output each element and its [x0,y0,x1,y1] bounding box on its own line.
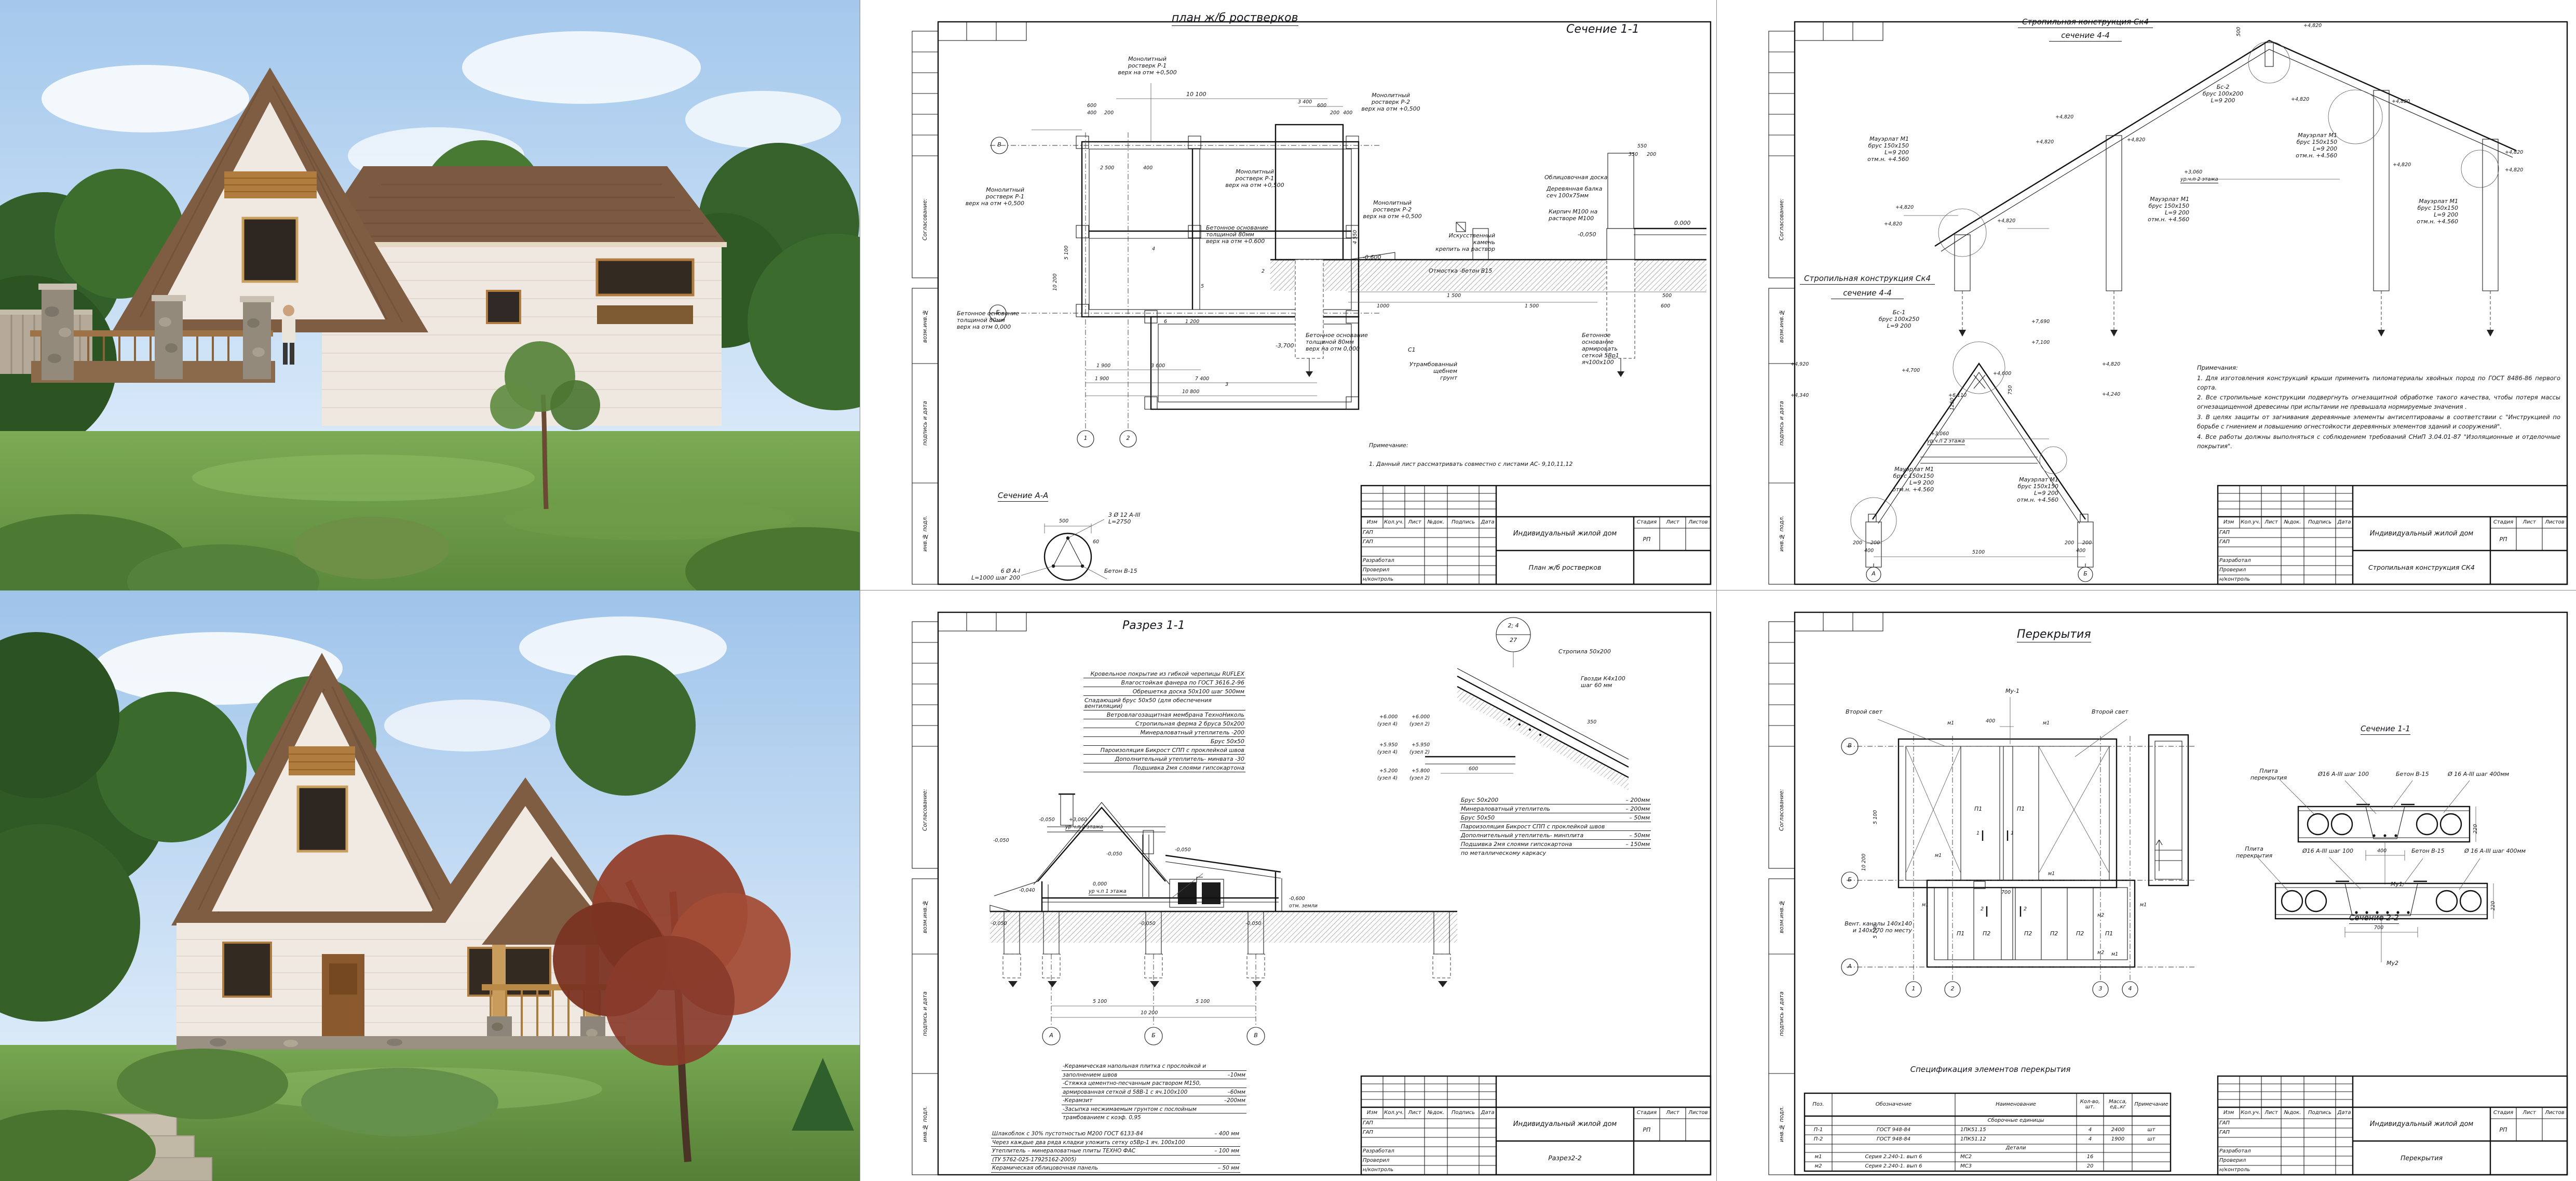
layer-value: – 100 мм [1214,1148,1239,1154]
titleblock-stage-value: РП [2490,1119,2516,1141]
titleblock-listov-label: Листов [1686,517,1711,528]
elevation-label: +6.000 [1412,714,1430,720]
dim-label: 3 400 [1298,99,1312,105]
spec-col: Масса, ед.,кг [2104,1093,2132,1116]
side-strip-label: Согласование: [1769,751,1795,868]
dim-label: 750 [2008,385,2013,395]
elevation-label: -0,050 [1106,851,1122,857]
titleblock-col: №док. [2281,1107,2304,1119]
elevation-note: ур.ч.п 2 этажа [2180,177,2218,183]
elevation-label: +4,820 [2392,99,2410,104]
layer-value: – 50мм [1629,833,1650,838]
spec-cell: 1ПК51.12 [1955,1135,2082,1144]
elevation-label: +4,820 [2505,167,2523,173]
render-bottom-photo [0,591,860,1181]
dim-label: 10 800 [1182,389,1199,395]
titleblock-col: Кол.уч. [2240,517,2261,528]
slab-label: П1 [2105,931,2113,937]
elevation-label: +3,060 [2184,169,2202,175]
section-2-2-slab [2257,856,2493,962]
layer-value: – 400 мм [1214,1131,1239,1137]
dim-label: 400 [1143,165,1153,171]
list-line: Брус 50х50 [1083,737,1245,746]
layer-name: (ТУ 5762-025-17925162-2005) [992,1157,1077,1163]
axis-label: 2 [1124,435,1132,442]
dim-label: 200 [2065,540,2074,546]
titleblock-listov-label: Листов [1686,1107,1711,1119]
section-mark: 6 [1164,319,1167,325]
dim-label: 220 [2490,901,2496,910]
spec-cell: 4 [2077,1135,2104,1144]
node-detail-drawing [1425,618,1629,790]
dim-label: 4 550 [1352,230,1358,244]
spec-group: Сборочные единицы [1955,1116,2077,1125]
titleblock-col: №док. [1425,517,1447,528]
layer-name: Минераловатный утеплитель [1461,806,1550,812]
gost-frame [912,612,1711,1175]
elevation-label: -0,600 [1363,254,1381,261]
list-line: Стропильная ферма 2 бруса 50х200 [1083,719,1245,728]
elevation-label: +4,820 [1884,221,1902,227]
annotation: Ø 16 А-III шаг 400мм [2448,771,2509,778]
list-line: заполнением швов–10мм [1062,1071,1246,1080]
list-line: -Стяжка цементно-песчанным раствором М15… [1062,1079,1246,1088]
annotation: Мауэрлат М1 брус 150х150 L=9 200 отм.н. … [1852,136,1909,163]
annotation: м1 [1922,902,1929,908]
elevation-label: +4,820 [2055,114,2073,120]
annotation: Монолитный ростверк Р-2 верх на отм +0,5… [1361,200,1423,220]
dim-label: 500 [1059,518,1068,524]
titleblock-col: Подпись [2304,517,2336,528]
axis-label: 3 [2096,986,2105,992]
layer-value: – 150мм [1625,841,1650,847]
notes-heading: Примечания: [2197,364,2560,373]
titleblock-col: Кол.уч. [1383,1107,1405,1119]
sheet-slabs: Согласование: возм.инв.№ подпись и дата … [1717,591,2576,1181]
layer-value: –60мм [1228,1090,1245,1095]
slab-label: П1 [2017,806,2025,813]
annotation: Второй свет [2092,709,2128,716]
dim-label: 60 [1093,539,1099,545]
render-top-photo [0,0,860,591]
elevation-label: 0.000 [1674,220,1691,227]
annotation: С1 [1408,347,1416,354]
titleblock-docname: План ж/б ростверков [1496,551,1634,584]
dim-label: 3 600 [1151,363,1165,369]
titleblock-role: н/контроль [1363,1165,1423,1175]
side-strip-label: инв.№ подл. [912,483,938,584]
elevation-label: +4,240 [2102,392,2120,397]
elevation-label: -0,050 [1578,232,1596,238]
section-subtitle: сечение 4-4 [1831,289,1904,299]
annotation: Искусственный камень крепить на раствор [1428,233,1495,253]
elevation-note: (узел 4) [1377,775,1398,781]
layer-name: Дополнительный утеплитель- минплита [1461,833,1583,838]
note-line: 1. Для изготовления конструкций крыши пр… [2197,374,2560,393]
dim-label: 700 [2001,890,2011,895]
annotation: Мауэрлат М1 брус 150х150 L=9 200 отм.н. … [1877,466,1934,493]
titleblock-col: Дата [1479,517,1496,528]
annotation: Утрамбованный щебнем грунт [1400,361,1457,382]
annotation: Мауэрлат М1 брус 150х150 L=9 200 отм.н. … [2132,196,2189,223]
elevation-label: -0,050 [1175,847,1191,853]
elevation-label: +4,820 [2127,137,2145,143]
layer-name: Шлакоблок с 30% пустотностью М200 ГОСТ 6… [992,1131,1143,1137]
slab-label: П2 [2050,931,2058,937]
elevation-note: (узел 2) [1409,721,1430,727]
layer-name: по металлическому каркасу [1461,850,1546,856]
titleblock-project: Индивидуальный жилой дом [2353,1107,2490,1141]
elevation-label: +3,060 [1069,817,1087,823]
dim-label: 5 100 [1873,810,1878,824]
axis-label: 2 [1948,986,1957,992]
list-line: Минераловатный утеплитель– 200мм [1460,804,1651,813]
axis-label: В [1846,743,1854,749]
elevation-note: ур ч.п 2 этажа [1065,824,1103,831]
dim-label: 1 200 [1185,319,1199,325]
dim-label: 1 900 [1095,376,1109,382]
titleblock-role: н/контроль [1363,575,1423,584]
section-mark: 1 [1976,830,1980,836]
dim-label: 600 [1317,103,1326,109]
elevation-label: -0,050 [1245,921,1262,927]
annotation: Плита перекрытия [2231,846,2277,860]
side-strip-label: Согласование: [912,751,938,868]
titleblock-role: Разработал [1363,556,1423,566]
annotation: Монолитный ростверк Р-1 верх на отм +0,5… [1224,169,1286,189]
list-line: Ветровлагозащитная мембрана ТехноНиколь [1083,710,1245,719]
annotation: Плита перекрытия [2245,768,2292,782]
dim-label: 5 100 [1873,924,1878,938]
side-strip-label: подпись и дата [912,954,938,1073]
dim-label: 10 200 [1052,274,1058,291]
axis-label: В [995,142,1004,149]
layer-name: Утеплитель – минераловатные плиты ТЕХНО … [992,1148,1135,1154]
slab-label: П1 [1957,931,1964,937]
dim-label: 5 100 [1093,999,1107,1004]
titleblock-col: №док. [2281,517,2304,528]
titleblock-col: Изм [2218,1107,2240,1119]
layer-value: – 200мм [1625,797,1650,803]
list-line: Кровельное покрытие из гибкой черепицы R… [1083,669,1245,678]
layer-name: Брус 50х200 [1461,797,1498,803]
elevation-label: +4,820 [2036,139,2054,145]
slab-label: П2 [2024,931,2032,937]
dim-label: 200 [2082,540,2092,546]
layer-name: Через каждые два ряда кладки уложить сет… [992,1140,1185,1146]
axis-label: Б [1846,877,1854,883]
dim-label: 350 [1587,719,1596,725]
annotation: м2 [2097,912,2104,918]
slab-label: П1 [1974,806,1982,813]
elevation-label: +5.950 [1379,742,1398,748]
titleblock-col: Изм [2218,517,2240,528]
spec-title: Спецификация элементов перекрытия [1910,1065,2071,1075]
titleblock-col: Кол.уч. [2240,1107,2261,1119]
elevation-note: отм. земли [1289,903,1318,909]
dim-label: 400 [2377,848,2387,854]
section-title: Сечение 1-1 [2361,724,2410,735]
elevation-label: -0,050 [1039,817,1055,823]
dim-label: 200 [1330,110,1339,116]
annotation: Бетон В-15 [2411,848,2445,855]
annotation: Гвозди К4х100 шаг 60 мм [1581,676,1625,689]
section-mark: 2 [1981,906,1984,912]
list-line: Влагостойкая фанера по ГОСТ 3616.2-96 [1083,678,1245,687]
elevation-label: +4,340 [1791,393,1809,398]
annotation: Ø 16 А-III шаг 400мм [2464,848,2526,855]
list-line: Пароизоляция Бикрост СПП с проклейкой шв… [1460,822,1651,831]
elevation-label: +7,690 [2031,319,2050,325]
dim-label: 400 [1087,110,1096,116]
titleblock-col: Подпись [1447,1107,1479,1119]
titleblock-role: Проверил [2219,566,2280,575]
list-line: Обрешетка доска 50х100 шаг 500мм [1083,687,1245,696]
spec-cell: МС3 [1955,1162,2082,1171]
layer-name: -Засыпка несжимаемым грунтом с послойным [1063,1107,1197,1112]
titleblock-stage-label: Стадия [2490,517,2516,528]
annotation: м1 [2043,720,2050,726]
spec-cell: 20 [2077,1162,2104,1171]
spec-cell: 1900 [2104,1135,2132,1144]
elevation-label: +4,820 [1997,218,2015,224]
sheet-razrez: Согласование: возм.инв.№ подпись и дата … [860,591,1717,1181]
annotation: 3 Ø 12 А-III L=2750 [1108,512,1140,526]
spec-cell: 4 [2077,1125,2104,1135]
elevation-note: (узел 2) [1409,775,1430,781]
titleblock-project: Индивидуальный жилой дом [1496,517,1634,551]
titleblock-stage-value: РП [2490,528,2516,551]
titleblock-project: Индивидуальный жилой дом [1496,1107,1634,1141]
dim-label: 1000 [1377,303,1389,309]
titleblock-col: №док. [1425,1107,1447,1119]
list-line: трамбованием с коэф. 0,95 [1062,1113,1246,1122]
annotation: Бс-1 брус 100х250 L=9 200 [1870,310,1928,330]
annotation: м1 [1935,853,1942,858]
dim-label: 200 [1853,540,1862,546]
annotation: м1 [2111,951,2118,957]
annotation: Деревянная балка сеч 100х75мм [1547,186,1602,199]
elevation-label: +4,600 [1993,371,2011,377]
titleblock-col: Лист [1405,517,1425,528]
titleblock-role: ГАП [2219,1119,2280,1128]
section-title: Сечение 2-2 [2349,914,2399,924]
sheet-truss: Согласование: возм.инв.№ подпись и дата … [1717,0,2576,591]
dim-label: 500 [1662,293,1672,299]
titleblock-role: ГАП [2219,1128,2280,1137]
side-strip-label: подпись и дата [1769,364,1795,483]
layer-name: -Керамическая напольная плитка с прослой… [1063,1064,1206,1069]
dim-label: 7 400 [1195,376,1209,382]
list-line: армированная сеткой d 58В-1 с яч.100х100… [1062,1088,1246,1097]
spec-cell: 1ПК51.15 [1955,1125,2082,1135]
note-line: 2. Все стропильные конструкции подвергну… [2197,393,2560,412]
titleblock-role: ГАП [1363,1128,1423,1137]
layer-name: заполнением швов [1063,1072,1117,1078]
elevation-label: +4,820 [2393,162,2411,168]
axis-label: А [1846,963,1854,970]
section-mark: 5 [1201,284,1204,289]
node-ref-bottom: 27 [1502,637,1525,644]
titleblock-listov-label: Листов [2542,1107,2567,1119]
spec-col: Наименование [1955,1093,2077,1116]
titleblock-list-label: Лист [2516,1107,2542,1119]
layer-name: Брус 50х50 [1461,815,1495,821]
elevation-label: +6.000 [1379,714,1398,720]
titleblock-project: Индивидуальный жилой дом [2353,517,2490,551]
titleblock-col: Дата [2336,517,2353,528]
annotation: Бетон В-15 [2396,771,2429,778]
titleblock-role: Разработал [2219,556,2280,566]
titleblock-role: Проверил [1363,1156,1423,1165]
slab-plan-drawing [1841,697,2194,997]
elevation-label: -0,050 [1140,921,1156,927]
elevation-label: +4,820 [1895,205,1914,210]
titleblock-role: Проверил [2219,1156,2280,1165]
elevation-label: +5.800 [1412,768,1430,774]
list-line: Брус 50х50– 50мм [1460,813,1651,822]
titleblock-stage-label: Стадия [1634,1107,1660,1119]
list-line: Минераловатный утеплитель -200 [1083,728,1245,737]
spec-cell: ГОСТ 948-84 [1832,1135,1955,1144]
section-mark: 2 [1262,269,1265,274]
side-strip-label: возм.инв.№ [1769,288,1795,364]
layer-name: -Керамзит [1063,1098,1092,1104]
titleblock-col: Изм [1361,1107,1383,1119]
titleblock-docname: Разрез2-2 [1496,1141,1634,1175]
spec-cell: П-1 [1805,1125,1832,1135]
titleblock-list-label: Лист [2516,517,2542,528]
annotation: м2 [2097,950,2104,956]
side-strip-label: возм.инв.№ [912,879,938,954]
annotation: Облицовочная доска [1544,175,1607,181]
spec-cell: м2 [1805,1162,1832,1171]
layer-value: –10мм [1228,1072,1245,1078]
wall-composition-list: Шлакоблок с 30% пустотностью М200 ГОСТ 6… [991,1130,1240,1173]
slab-label: П2 [1983,931,1990,937]
spec-cell: МС2 [1955,1152,2082,1162]
list-line: по металлическому каркасу [1460,849,1651,857]
section-mark: 3 [1225,382,1228,387]
list-line: -Засыпка несжимаемым грунтом с послойным [1062,1105,1246,1114]
sheet-title: Перекрытия [2017,628,2091,642]
layer-name: Пароизоляция Бикрост СПП с проклейкой шв… [1461,824,1605,829]
section-title: Сечение 1-1 [1566,23,1639,36]
titleblock-listov-label: Листов [2542,517,2567,528]
dim-label: 10 200 [1141,1010,1158,1016]
lower-truss-drawing [1851,342,2093,582]
dim-label: 350 [1629,152,1638,157]
spec-col: Кол-во, шт. [2077,1093,2104,1116]
titleblock-role: Разработал [2219,1147,2280,1156]
titleblock-role: ГАП [2219,538,2280,547]
titleblock-col: Дата [2336,1107,2353,1119]
titleblock-col: Кол.уч. [1383,517,1405,528]
list-line: Керамическая облицовочная панель– 50 мм [991,1164,1240,1173]
dim-label: 200 [1104,110,1114,116]
spec-cell: П-2 [1805,1135,1832,1144]
section-title: Стропильная конструкция Ск4 [1800,274,1935,285]
elevation-label: +4,820 [2102,361,2120,367]
titleblock-docname: Стропильная конструкция СК4 [2353,551,2490,584]
layer-name: -Стяжка цементно-песчанным раствором М15… [1063,1081,1201,1086]
spec-cell: шт [2132,1125,2171,1135]
titleblock-stage-label: Стадия [2490,1107,2516,1119]
dim-label: 400 [1986,718,1995,724]
axis-label: Б [2081,571,2090,578]
titleblock-col: Дата [1479,1107,1496,1119]
section-a-a-drawing [1021,519,1107,580]
sheet-title: Разрез 1-1 [1122,619,1185,633]
spec-col: Примечание [2132,1093,2171,1116]
axis-label: 1 [1909,986,1918,992]
dim-label: 1 500 [1447,293,1461,299]
list-line: Дополнительный утеплитель- минвата -30 [1083,755,1245,763]
list-line: -Керамическая напольная плитка с прослой… [1062,1062,1246,1071]
titleblock-col: Подпись [2304,1107,2336,1119]
annotation: Ø16 А-III шаг 100 [2318,771,2369,778]
elevation-note: (узел 4) [1377,721,1398,727]
side-strip-label: инв.№ подл. [912,1073,938,1175]
dim-label: 5100 [1972,549,1985,555]
side-strip-label: инв.№ подл. [1769,1073,1795,1175]
titleblock-stage-label: Стадия [1634,517,1660,528]
node-ref-top: 2; 4 [1502,623,1525,629]
elevation-label: -0,600 [1289,896,1305,902]
section-mark: 2 [2024,906,2027,912]
elevation-label: +4,820 [2303,23,2322,29]
axis-label: В [1252,1032,1260,1039]
elevation-label: +4,920 [1791,361,1809,367]
titleblock-role: ГАП [1363,528,1423,538]
annotation: Бетонное основание толщиной 80мм верх на… [1206,225,1279,245]
dim-label: 550 [1637,143,1647,149]
list-line: Пароизоляция Бикрост СПП с проклейкой шв… [1083,746,1245,755]
dim-label: 5 100 [1064,246,1069,260]
dim-label: 1250 [1949,398,1955,410]
page: Согласование: возм.инв.№ подпись и дата … [0,0,2576,1181]
dim-label: 220 [2473,824,2478,834]
layer-name: армированная сеткой d 58В-1 с яч.100х100 [1063,1090,1187,1095]
slab-label: П2 [2076,931,2084,937]
list-line: Подшивка 2мя слоями гипсокартона– 150мм [1460,840,1651,849]
spec-cell: 2400 [2104,1125,2132,1135]
side-strip-label: Согласование: [912,161,938,278]
elevation-label: -0,050 [991,921,1007,927]
dim-label: 400 [1343,110,1352,116]
annotation: м1 [2048,871,2055,877]
annotation: Кирпич М100 на растворе М100 [1549,209,1597,222]
axis-label: Б [1149,1032,1158,1039]
spec-cell: Серия 2.240-1. вып 6 [1832,1152,1955,1162]
list-line: Подшивка 2мя слоями гипсокартона [1083,763,1245,772]
spec-cell: Серия 2.240-1. вып 6 [1832,1162,1955,1171]
elevation-label: -0,050 [993,838,1009,843]
titleblock-col: Лист [2261,517,2281,528]
spec-cell: ГОСТ 948-84 [1832,1125,1955,1135]
side-strip-label: возм.инв.№ [1769,879,1795,954]
list-line: -Керамзит–200мм [1062,1096,1246,1105]
axis-label: А [1869,571,1878,578]
list-line: Брус 50х200– 200мм [1460,796,1651,804]
annotation: Му1 [2391,881,2403,888]
annotation: Бетонное основание толщиной 80мм верх на… [1306,332,1384,353]
note-line: 4. Все работы должны выполняться с соблю… [2197,433,2560,451]
annotation: Бетонное основание армировать сеткой 5Вр… [1582,332,1619,366]
annotation: Мауэрлат М1 брус 150х150 L=9 200 отм.н. … [2280,132,2337,159]
layer-value: – 50 мм [1218,1165,1239,1171]
elevation-label: -0,040 [1019,888,1035,893]
